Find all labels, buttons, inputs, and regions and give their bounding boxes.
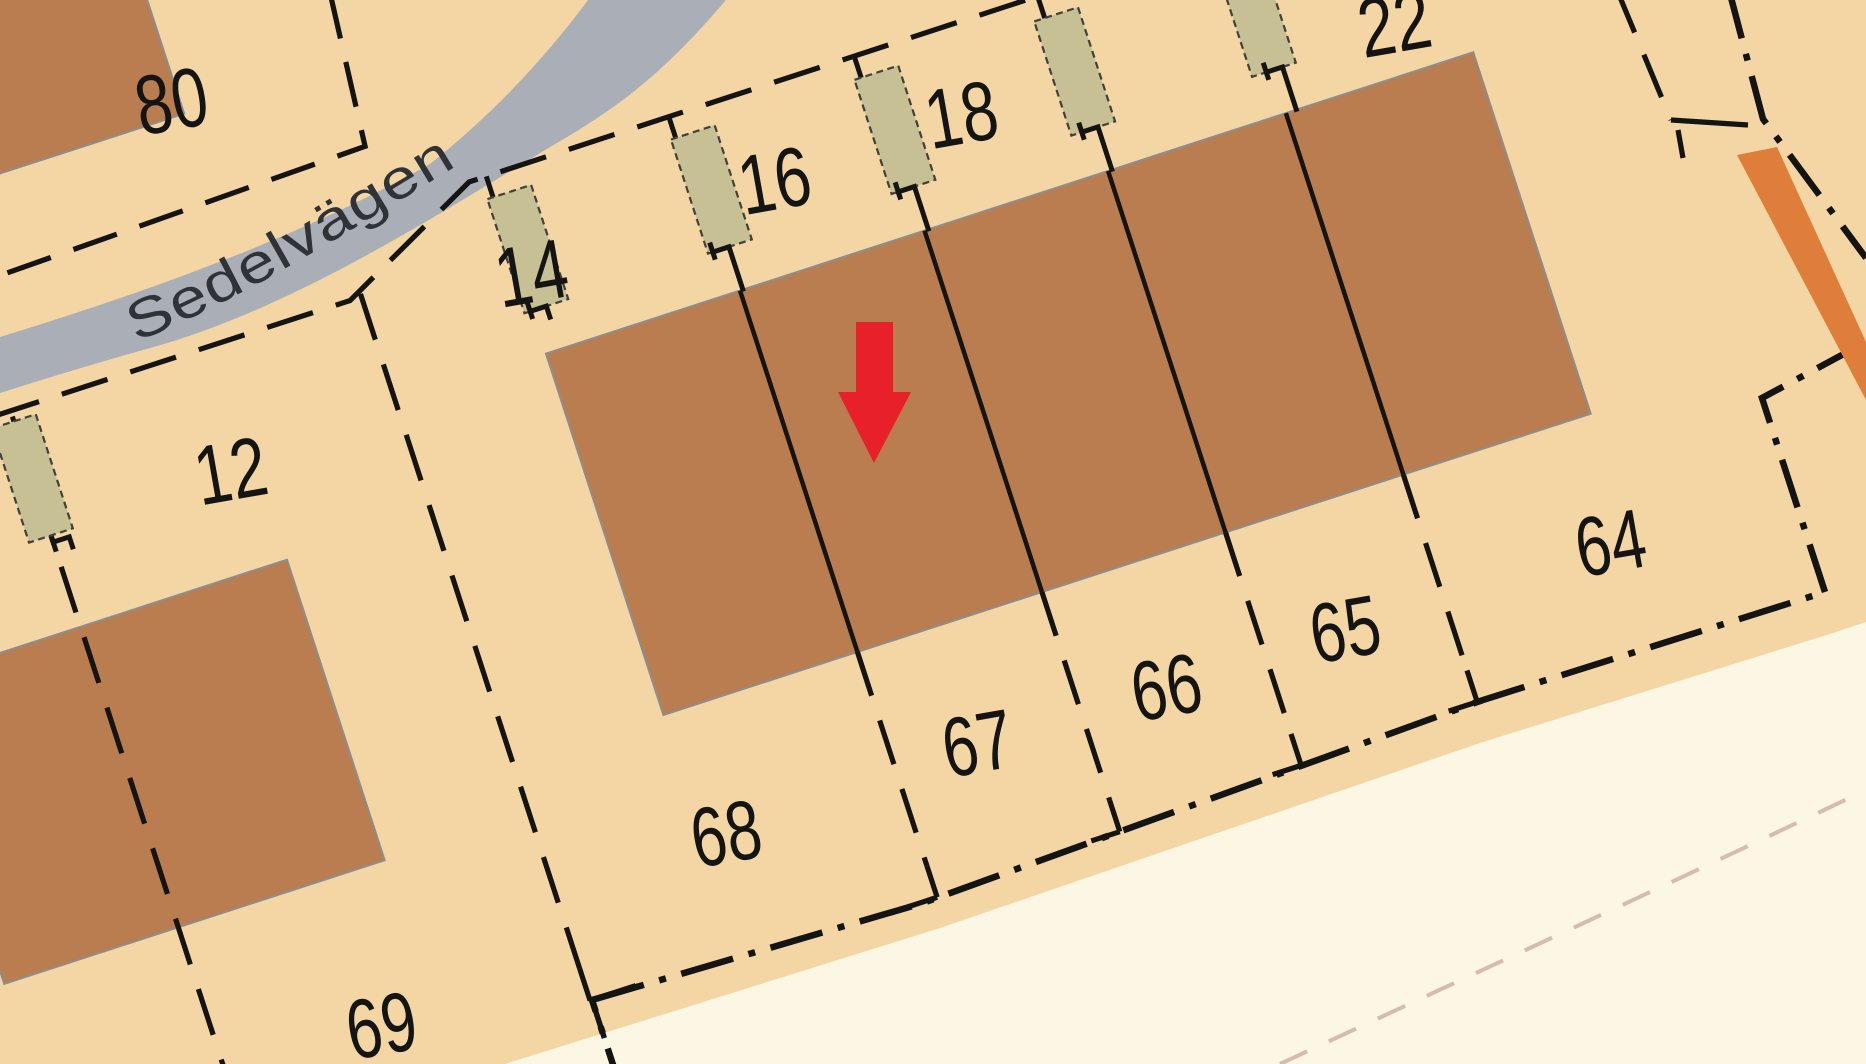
cadastral-map: 80 12 14 16 18 22 68 67 66 65 64 69 Sede… xyxy=(0,0,1866,1064)
map-canvas[interactable]: 80 12 14 16 18 22 68 67 66 65 64 69 Sede… xyxy=(0,0,1866,1064)
